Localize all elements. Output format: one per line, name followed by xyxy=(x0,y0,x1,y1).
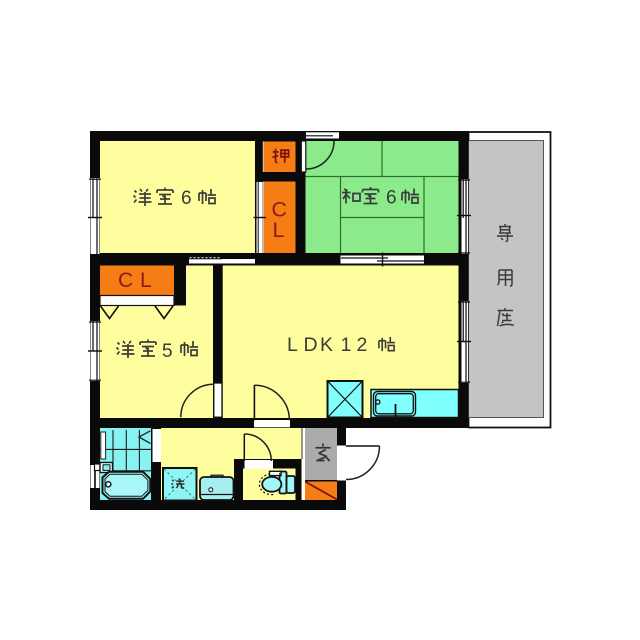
svg-text:L: L xyxy=(287,334,298,356)
svg-text:C: C xyxy=(118,269,133,292)
svg-text:K: K xyxy=(320,334,333,356)
svg-text:6: 6 xyxy=(386,188,397,209)
svg-text:5: 5 xyxy=(162,341,173,362)
svg-text:L: L xyxy=(273,218,285,242)
svg-text:D: D xyxy=(304,334,318,356)
svg-text:2: 2 xyxy=(357,334,368,356)
svg-text:1: 1 xyxy=(341,334,352,356)
svg-text:L: L xyxy=(140,269,152,292)
svg-text:6: 6 xyxy=(181,188,192,209)
